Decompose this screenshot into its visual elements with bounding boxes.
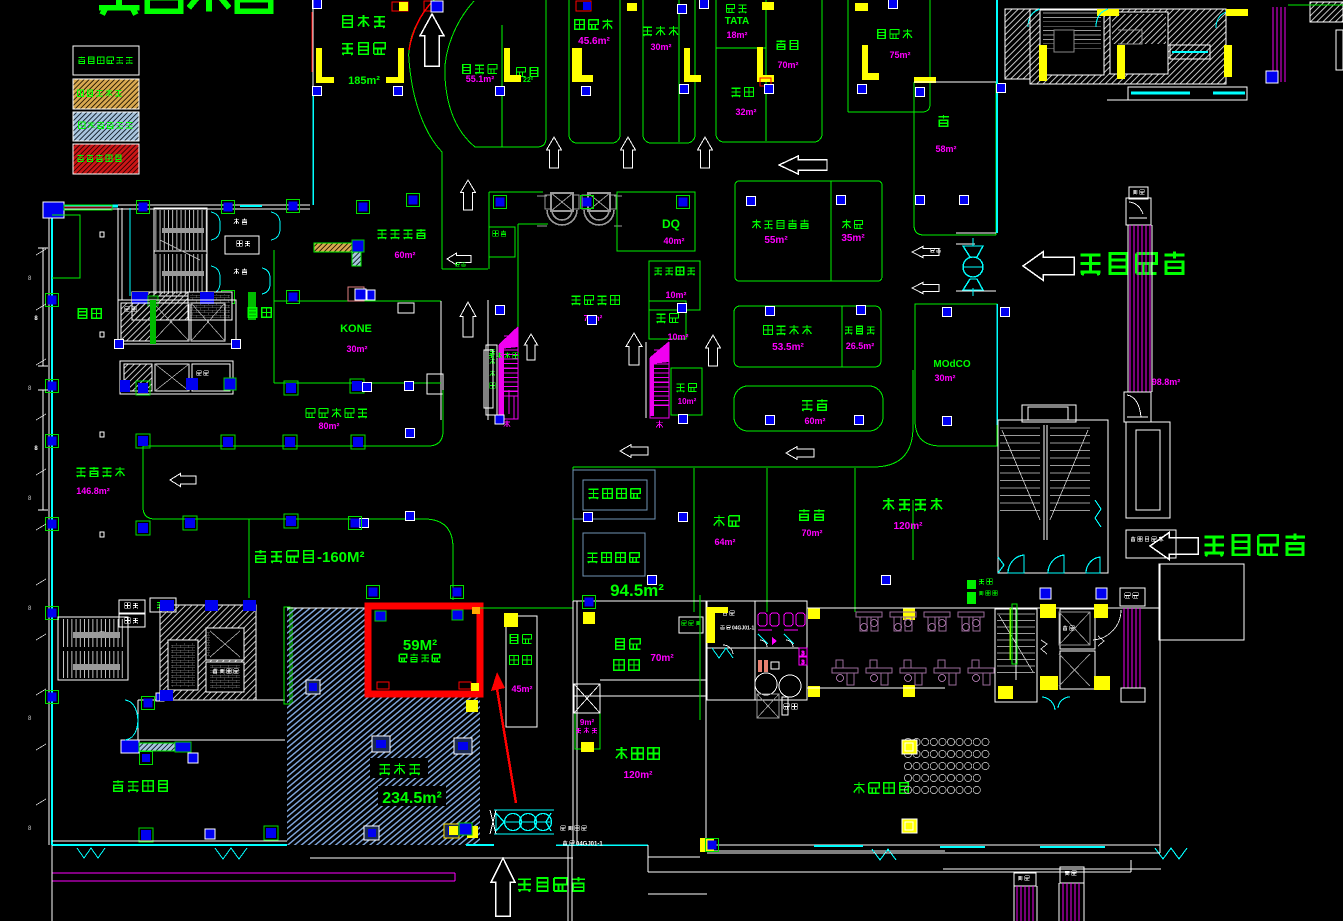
svg-text:53.5m²: 53.5m² xyxy=(772,342,804,353)
svg-text:3: 3 xyxy=(802,660,805,666)
svg-text:55.1m²: 55.1m² xyxy=(466,74,495,84)
svg-text:18m²: 18m² xyxy=(726,30,747,40)
svg-text:185m²: 185m² xyxy=(348,75,380,87)
svg-text:75m²: 75m² xyxy=(889,50,910,60)
svg-text:26.5m²: 26.5m² xyxy=(846,341,875,351)
svg-text:04GJ01-1: 04GJ01-1 xyxy=(576,841,603,847)
svg-text:10m²: 10m² xyxy=(665,290,686,300)
svg-text:80m²: 80m² xyxy=(318,421,339,431)
svg-text:45.6m²: 45.6m² xyxy=(578,36,610,47)
svg-text:120m²: 120m² xyxy=(894,521,924,532)
svg-text:45m²: 45m² xyxy=(511,684,532,694)
svg-text:58m²: 58m² xyxy=(935,144,956,154)
svg-text:64m²: 64m² xyxy=(714,537,735,547)
svg-text:60m²: 60m² xyxy=(394,250,415,260)
svg-text:55m²: 55m² xyxy=(764,235,788,246)
svg-text:32m²: 32m² xyxy=(735,107,756,117)
svg-text:-160M²: -160M² xyxy=(317,549,365,566)
svg-text:KONE: KONE xyxy=(340,323,372,335)
svg-text:DQ: DQ xyxy=(662,217,680,231)
svg-text:70m²: 70m² xyxy=(801,528,822,538)
svg-text:60m²: 60m² xyxy=(804,416,825,426)
svg-text:59M²: 59M² xyxy=(403,637,437,654)
svg-text:30m²: 30m² xyxy=(650,42,671,52)
svg-text:10m²: 10m² xyxy=(667,332,688,342)
svg-text:04GJ01-1: 04GJ01-1 xyxy=(732,625,754,631)
svg-text:98.8m²: 98.8m² xyxy=(1152,377,1181,387)
svg-text:30m²: 30m² xyxy=(934,373,955,383)
svg-text:146.8m²: 146.8m² xyxy=(76,486,110,496)
svg-text:9m²: 9m² xyxy=(580,718,595,727)
svg-text:22²: 22² xyxy=(523,77,534,84)
svg-text:120m²: 120m² xyxy=(624,770,654,781)
svg-text:70m²: 70m² xyxy=(650,653,674,664)
svg-text:MOdCO: MOdCO xyxy=(933,359,970,370)
svg-text:70m²: 70m² xyxy=(777,60,798,70)
svg-text:30m²: 30m² xyxy=(346,344,367,354)
svg-text:3: 3 xyxy=(802,651,805,657)
svg-text:40m²: 40m² xyxy=(663,236,684,246)
svg-text:10m²: 10m² xyxy=(678,397,697,406)
svg-text:234.5m²: 234.5m² xyxy=(382,790,442,807)
svg-text:35m²: 35m² xyxy=(841,233,865,244)
svg-text:TATA: TATA xyxy=(725,16,749,27)
